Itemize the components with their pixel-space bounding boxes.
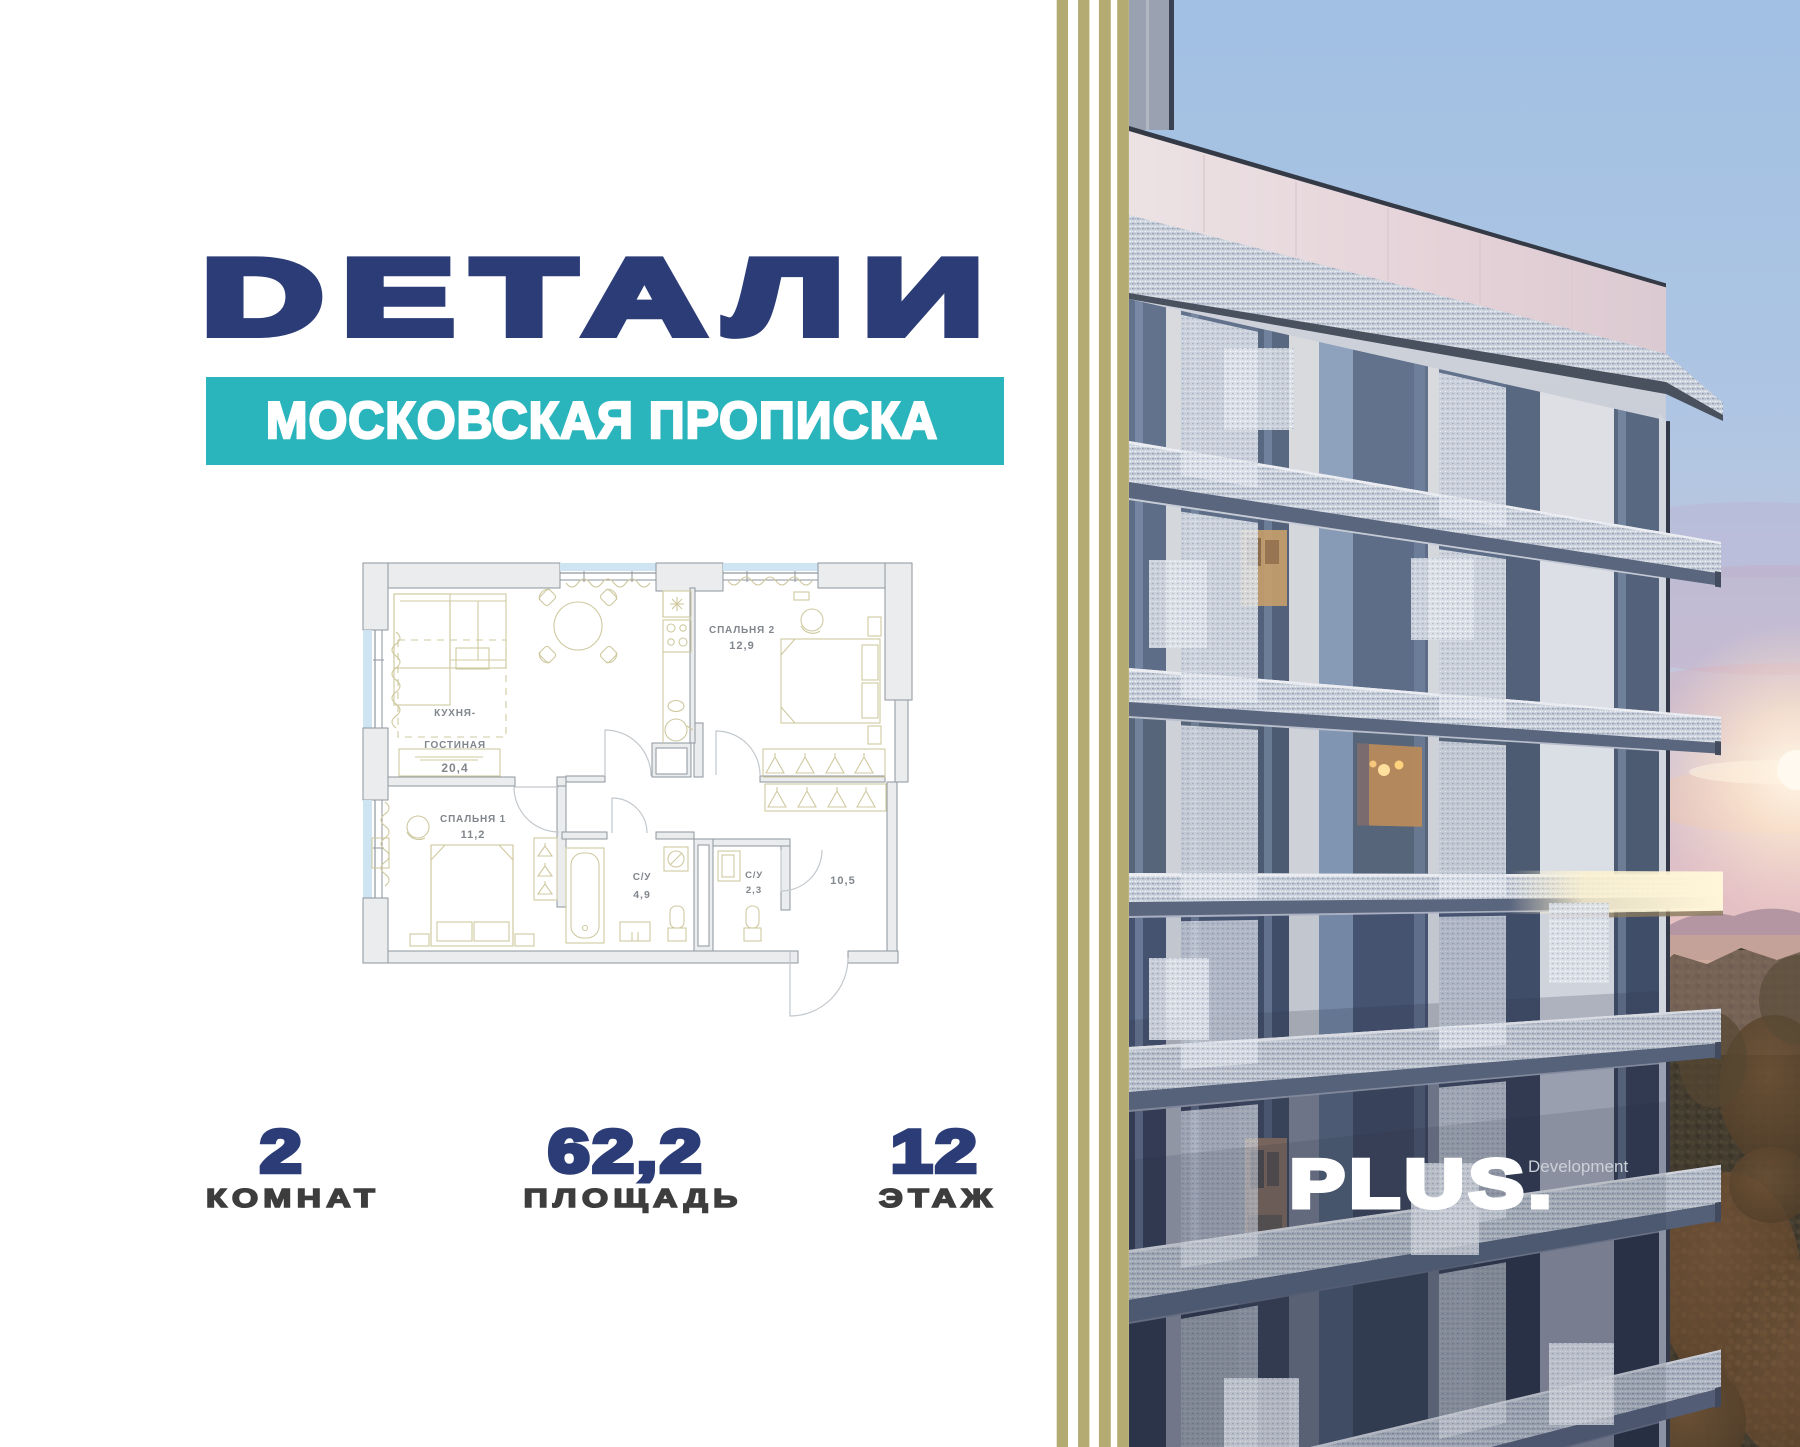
svg-text:ГОСТИНАЯ: ГОСТИНАЯ	[424, 740, 486, 751]
svg-text:СПАЛЬНЯ 1: СПАЛЬНЯ 1	[440, 814, 506, 825]
svg-text:С/У: С/У	[633, 872, 652, 883]
svg-text:2: 2	[260, 1119, 304, 1185]
svg-text:ЭТАЖ: ЭТАЖ	[879, 1185, 997, 1213]
svg-text:12: 12	[891, 1119, 979, 1185]
svg-text:12,9: 12,9	[729, 640, 754, 652]
svg-text:PLUS.: PLUS.	[1290, 1146, 1556, 1222]
svg-text:DЕТАЛИ: DЕТАЛИ	[202, 238, 1002, 357]
svg-text:11,2: 11,2	[461, 829, 486, 841]
svg-text:КОМНАТ: КОМНАТ	[206, 1185, 380, 1213]
svg-text:КУХНЯ-: КУХНЯ-	[434, 708, 476, 719]
svg-text:2,3: 2,3	[746, 885, 762, 896]
svg-text:ПЛОЩАДЬ: ПЛОЩАДЬ	[523, 1185, 742, 1213]
svg-text:МОСКОВСКАЯ ПРОПИСКА: МОСКОВСКАЯ ПРОПИСКА	[266, 391, 938, 449]
svg-text:СПАЛЬНЯ 2: СПАЛЬНЯ 2	[709, 625, 775, 636]
svg-text:4,9: 4,9	[633, 889, 651, 901]
svg-text:10,5: 10,5	[830, 875, 855, 887]
svg-text:Development: Development	[1528, 1157, 1628, 1176]
svg-text:20,4: 20,4	[441, 761, 468, 775]
svg-text:С/У: С/У	[745, 870, 763, 881]
svg-text:62,2: 62,2	[548, 1119, 704, 1185]
